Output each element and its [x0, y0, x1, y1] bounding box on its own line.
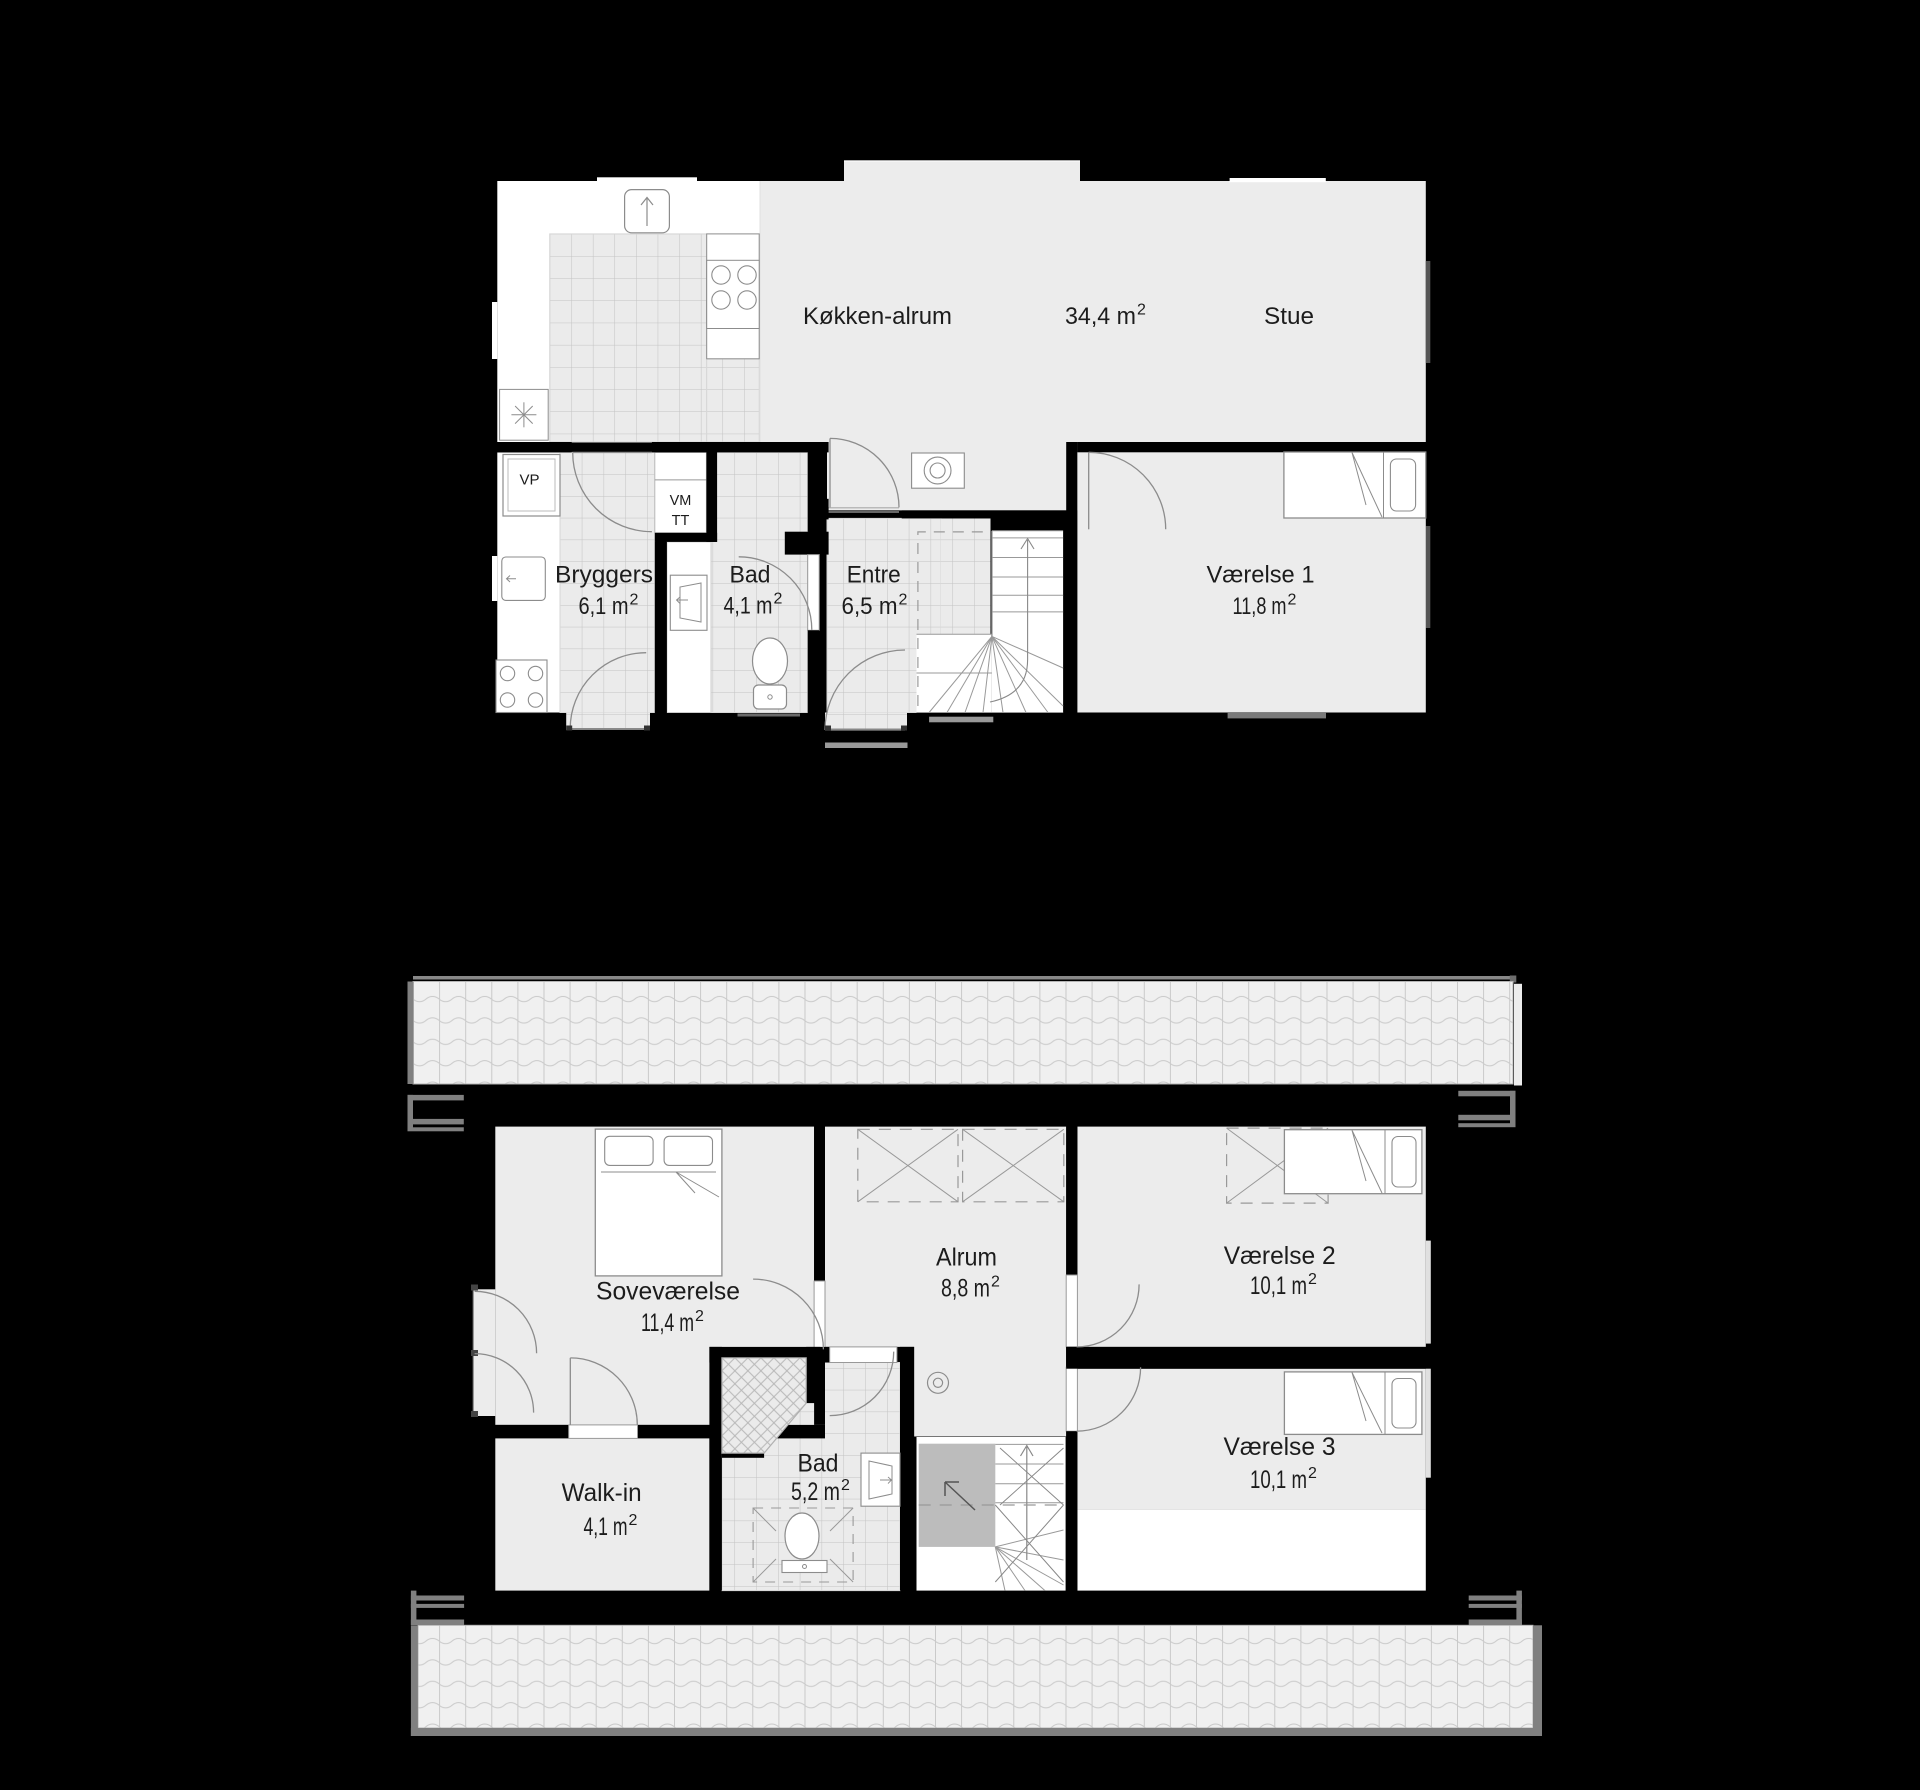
- svg-text:4,1 m: 4,1 m: [584, 1513, 628, 1541]
- svg-text:Stue: Stue: [1264, 303, 1314, 330]
- svg-text:8,8 m: 8,8 m: [941, 1275, 990, 1303]
- svg-text:2: 2: [899, 591, 908, 608]
- svg-text:Køkken-alrum: Køkken-alrum: [803, 303, 952, 330]
- svg-text:TT: TT: [672, 513, 690, 529]
- svg-text:11,4 m: 11,4 m: [641, 1309, 694, 1337]
- svg-text:Bad: Bad: [798, 1450, 839, 1478]
- svg-text:VM: VM: [670, 493, 692, 509]
- svg-text:Værelse 1: Værelse 1: [1207, 562, 1315, 589]
- svg-text:4,1 m: 4,1 m: [724, 592, 773, 619]
- svg-text:2: 2: [1308, 1271, 1317, 1288]
- svg-text:11,8 m: 11,8 m: [1233, 593, 1287, 620]
- svg-text:Soveværelse: Soveværelse: [596, 1278, 740, 1306]
- svg-text:34,4 m: 34,4 m: [1065, 303, 1136, 330]
- svg-text:Alrum: Alrum: [936, 1244, 997, 1272]
- svg-text:2: 2: [630, 591, 639, 608]
- svg-text:10,1 m: 10,1 m: [1250, 1272, 1307, 1300]
- svg-text:2: 2: [629, 1512, 638, 1529]
- svg-text:Bryggers: Bryggers: [555, 562, 653, 589]
- svg-text:10,1 m: 10,1 m: [1250, 1466, 1307, 1494]
- svg-text:Walk-in: Walk-in: [562, 1479, 642, 1507]
- svg-text:2: 2: [841, 1477, 850, 1494]
- svg-text:5,2 m: 5,2 m: [791, 1478, 840, 1506]
- svg-text:Værelse 3: Værelse 3: [1224, 1433, 1336, 1461]
- svg-text:Værelse 2: Værelse 2: [1224, 1242, 1336, 1270]
- svg-text:VP: VP: [519, 472, 539, 489]
- svg-text:6,5 m: 6,5 m: [842, 593, 898, 620]
- svg-text:2: 2: [774, 591, 783, 608]
- svg-text:2: 2: [695, 1308, 704, 1325]
- svg-text:2: 2: [991, 1274, 1000, 1291]
- svg-text:2: 2: [1308, 1465, 1317, 1482]
- svg-text:2: 2: [1137, 301, 1146, 318]
- svg-text:2: 2: [1288, 591, 1297, 608]
- svg-text:6,1 m: 6,1 m: [579, 593, 629, 620]
- svg-text:Entre: Entre: [847, 562, 901, 589]
- svg-text:Bad: Bad: [730, 562, 771, 589]
